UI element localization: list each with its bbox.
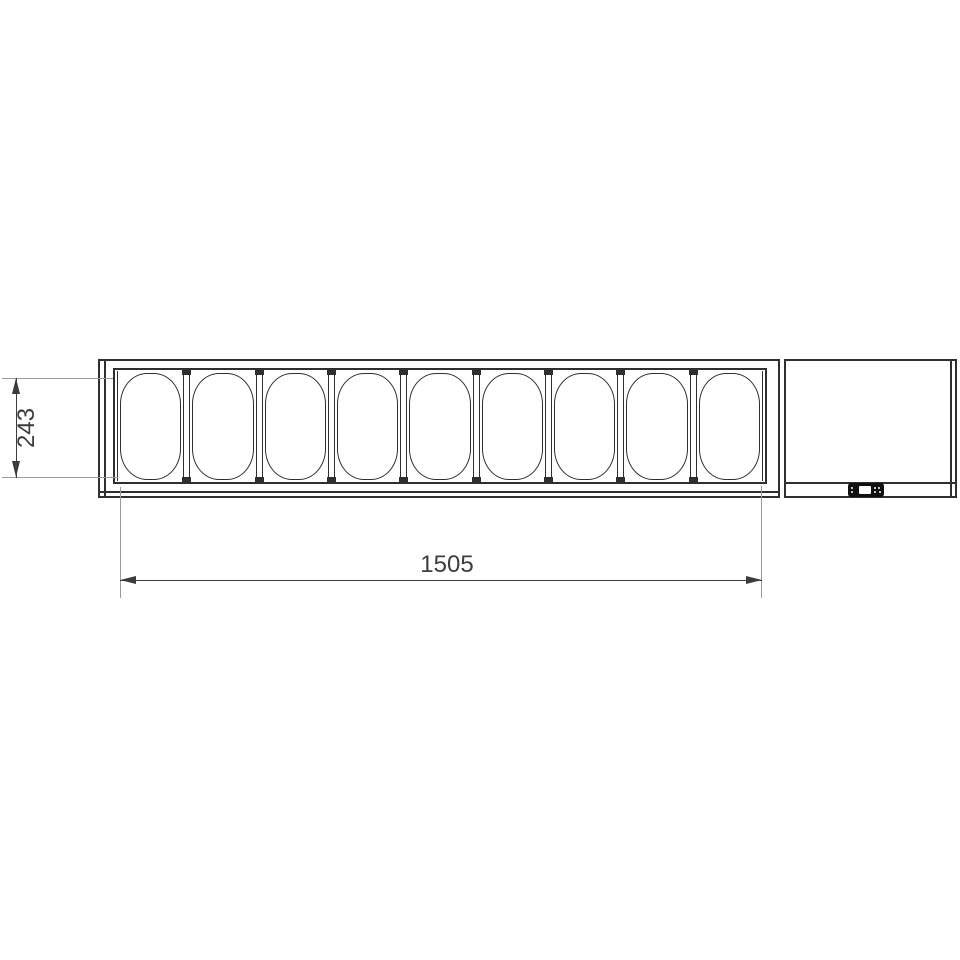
arrow-up-icon [12,378,20,394]
pan-frame [113,368,767,484]
pan-cell [479,371,546,481]
digital-controller-icon [848,483,884,497]
dimension-line-horizontal [120,580,762,581]
depth-dimension-label: 243 [13,394,41,462]
pan-cell [696,371,763,481]
gn-pan-opening [120,373,181,480]
controller-dot [851,491,853,493]
pan-cell [117,371,184,481]
arrow-right-icon [746,576,762,584]
pan-divider [329,371,334,481]
pan-section [98,359,780,498]
gn-pan-opening [337,373,398,480]
arrow-down-icon [12,461,20,477]
controller-display [859,486,871,494]
pan-divider [618,371,623,481]
technical-drawing: 243 1505 [0,0,960,960]
machine-compartment [784,359,957,498]
controller-dot [851,487,853,489]
arrow-left-icon [120,576,136,584]
gn-pan-opening [265,373,326,480]
pan-cell [406,371,473,481]
pan-divider [184,371,189,481]
gn-pan-opening [409,373,470,480]
pan-divider [257,371,262,481]
controller-dot [879,491,881,493]
machine-inner-right-line [950,361,952,496]
controller-dot [874,491,876,493]
pan-divider [546,371,551,481]
gn-pan-opening [699,373,760,480]
gn-pan-opening [626,373,687,480]
width-dimension-label: 1505 [372,552,522,578]
pan-divider [691,371,696,481]
pan-divider [401,371,406,481]
pan-cell [262,371,329,481]
pan-divider [474,371,479,481]
controller-dot [878,487,880,489]
pan-cell [334,371,401,481]
gn-pan-opening [554,373,615,480]
gn-pan-opening [482,373,543,480]
pan-cell [189,371,256,481]
pan-section-inner-left-line [104,361,106,496]
extension-line-bottom [2,477,118,478]
pan-cell [623,371,690,481]
pan-cell [551,371,618,481]
pan-section-inner-bottom-line [100,491,778,493]
gn-pan-opening [192,373,253,480]
controller-dot [874,487,876,489]
